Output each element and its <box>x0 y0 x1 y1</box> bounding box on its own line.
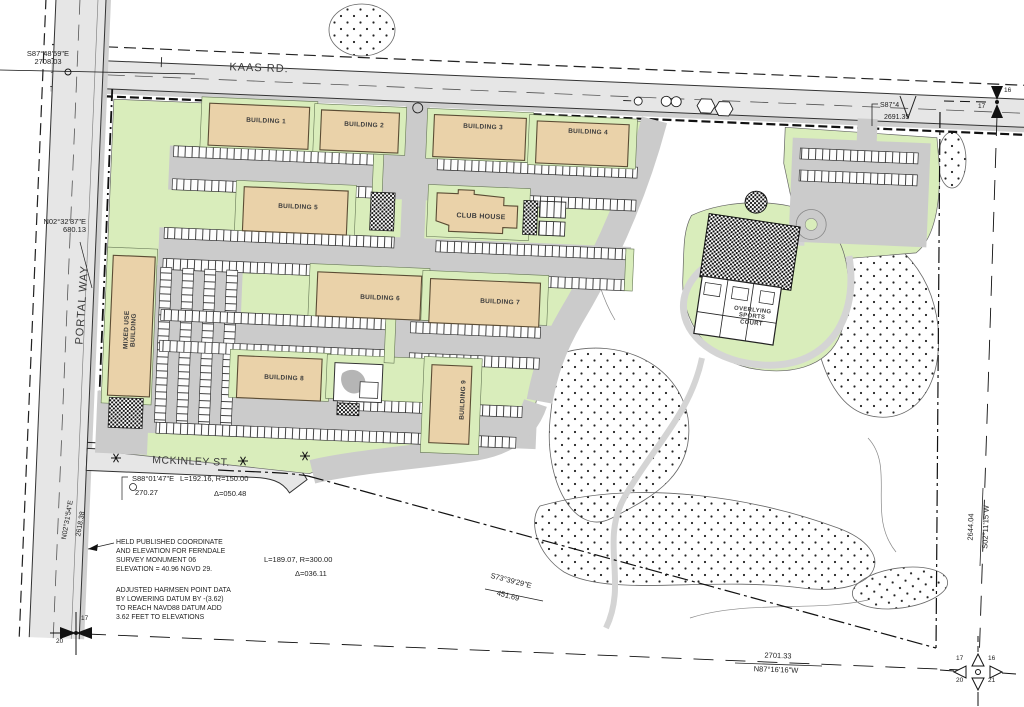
building-2-footprint <box>320 110 400 153</box>
mixed-use-label: MIXED USE BUILDING <box>123 310 138 349</box>
se-corner-16: 16 <box>988 656 995 663</box>
ne-corner-17: 17 <box>978 104 985 111</box>
sw-corner-17: 17 <box>81 616 88 623</box>
stipple-blob-top <box>329 4 395 56</box>
south-section-line <box>86 634 962 670</box>
mckinley-bearing-label: S88°01'47"E <box>132 475 174 483</box>
se-corner-17: 17 <box>956 656 963 663</box>
mckinley-delta-label: Δ=050.48 <box>214 490 246 498</box>
mckinley-curve-label: L=192.16, R=150.00 <box>180 475 248 483</box>
stipple-blob-east-edge <box>938 132 966 188</box>
south-section-dist-label: 2701.33 <box>764 652 791 661</box>
sw-corner-20: 20 <box>56 639 63 646</box>
kaas-rd-label: KAAS RD. <box>229 62 289 76</box>
se-corner-symbol <box>940 636 1016 706</box>
east-section-bearing-label: S02°11'15"W <box>981 505 990 549</box>
site-plan-canvas: KAAS RD. PORTAL WAY MCKINLEY ST. BUILDIN… <box>0 0 1024 707</box>
east-section-dist-label: 2644.04 <box>967 513 976 540</box>
east-section-line <box>979 116 997 664</box>
south-delta-label: Δ=036.11 <box>295 570 327 578</box>
building-1-footprint <box>208 103 310 149</box>
ne-dist-label: 2691.35 <box>884 114 909 121</box>
se-corner-20: 20 <box>956 678 963 685</box>
stipple-blob-bottom <box>535 493 875 590</box>
mckinley-dist-label: 270.27 <box>135 489 158 497</box>
ne-bearing-label: S87°4 <box>880 102 899 109</box>
se-corner-21: 21 <box>988 678 995 685</box>
tree-symbol <box>745 191 768 214</box>
portal-way-road <box>19 0 116 640</box>
survey-note-1: HELD PUBLISHED COORDINATE AND ELEVATION … <box>116 538 225 574</box>
w-bearing-label: N02°32'37"E 680.13 <box>16 218 86 234</box>
survey-note-2: ADJUSTED HARMSEN POINT DATA BY LOWERING … <box>116 586 231 622</box>
south-curve-label: L=189.07, R=300.00 <box>264 556 332 564</box>
nw-bearing-label: S87°48'59"E 2708.03 <box>8 50 88 66</box>
pool-building <box>333 363 383 403</box>
south-section-bearing-label: N87°16'16"W <box>754 665 799 674</box>
sports-court-label: OVERLYING SPORTS COURT <box>732 306 771 329</box>
ne-corner-16: 16 <box>1004 88 1011 95</box>
building-3-footprint <box>433 115 527 161</box>
